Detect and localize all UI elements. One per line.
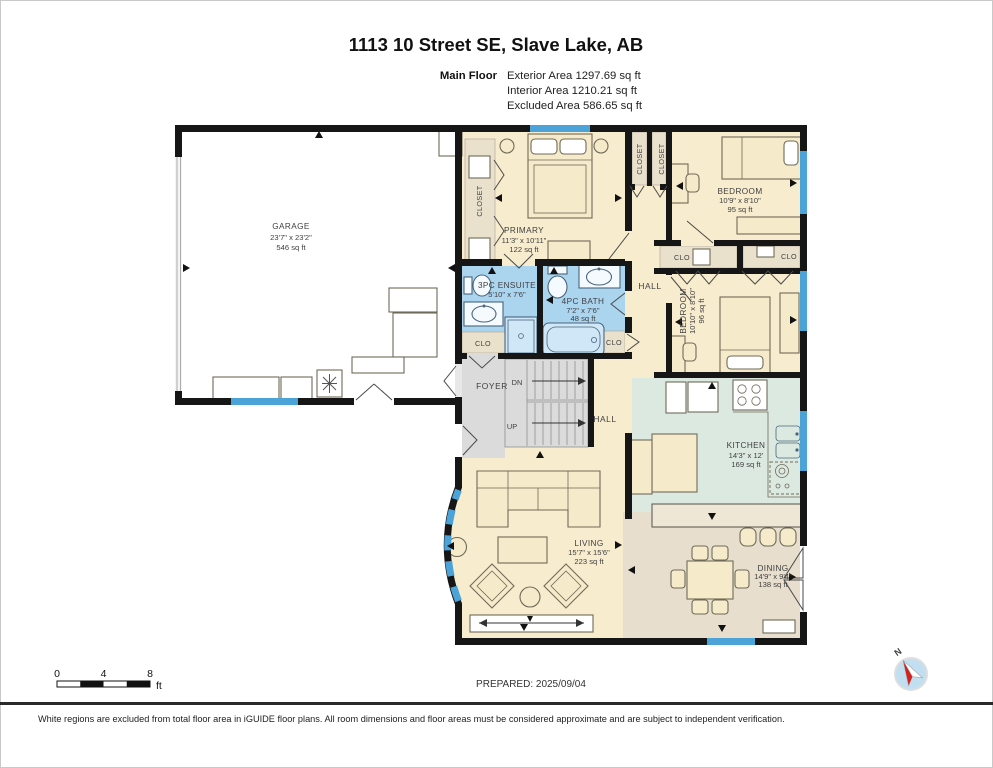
chair-icon xyxy=(692,546,708,560)
bathtub-icon xyxy=(543,323,604,356)
clo-label: CLO xyxy=(781,252,797,261)
living-dims-label: 15'7" x 15'6" xyxy=(568,548,610,557)
pillow-icon xyxy=(784,141,798,165)
ensuite-dims-label: 5'10" x 7'6" xyxy=(488,290,526,299)
chair-icon xyxy=(735,570,749,588)
scale-tick-4: 4 xyxy=(101,668,107,680)
bedroom1-dims-label: 10'9" x 8'10" xyxy=(719,196,761,205)
garage-floor xyxy=(178,128,459,402)
dresser-icon xyxy=(548,241,590,261)
closet-shelf-icon xyxy=(469,238,490,260)
hall-label: HALL xyxy=(593,414,616,424)
kitchen-dims-label: 14'3" x 12' xyxy=(729,451,764,460)
closet-label: CLOSET xyxy=(475,185,484,216)
side-table-icon xyxy=(520,587,540,607)
chair-icon xyxy=(686,174,699,192)
footer-divider xyxy=(0,702,993,705)
foyer-label: FOYER xyxy=(476,381,508,391)
stairs xyxy=(505,359,588,447)
coffee-table-icon xyxy=(498,537,547,563)
nightstand-icon xyxy=(500,139,514,153)
bedroom2-area-label: 96 sq ft xyxy=(697,298,706,324)
bath-name-label: 4PC BATH xyxy=(562,297,605,306)
window xyxy=(800,271,807,331)
scale-tick-8: 8 xyxy=(147,668,153,680)
closet-label: CLOSET xyxy=(635,143,644,174)
floor-label: Main Floor xyxy=(440,70,498,82)
exterior-area: Exterior Area 1297.69 sq ft xyxy=(507,70,642,82)
vanity-sink-icon xyxy=(464,302,503,326)
primary-dims-label: 11'3" x 10'11" xyxy=(502,236,547,245)
excluded-area: Excluded Area 586.65 sq ft xyxy=(507,100,643,112)
fridge-icon xyxy=(666,382,686,413)
nightstand-icon xyxy=(594,139,608,153)
stairs-down-label: DN xyxy=(512,378,523,387)
bath-area-label: 48 sq ft xyxy=(571,314,597,323)
dresser-icon xyxy=(737,217,803,234)
foyer-floor xyxy=(462,359,505,458)
footer-disclaimer: White regions are excluded from total fl… xyxy=(38,714,785,724)
garage-name-label: GARAGE xyxy=(272,222,310,231)
primary-name-label: PRIMARY xyxy=(504,226,544,235)
window xyxy=(800,151,807,214)
chair-icon xyxy=(671,570,685,588)
shower-icon xyxy=(505,317,537,356)
pillow-icon xyxy=(560,139,586,154)
window xyxy=(231,398,298,405)
scale-unit-label: ft xyxy=(156,680,162,692)
primary-area-label: 122 sq ft xyxy=(509,245,539,254)
window xyxy=(707,638,755,645)
peninsula-counter xyxy=(652,504,802,527)
chair-icon xyxy=(692,600,708,614)
toilet-icon xyxy=(548,266,567,298)
living-name-label: LIVING xyxy=(574,539,603,548)
kitchen-area-label: 169 sq ft xyxy=(731,460,761,469)
dresser-icon xyxy=(780,293,799,353)
hall-label: HALL xyxy=(638,281,661,291)
sideboard-icon xyxy=(763,620,795,633)
window xyxy=(800,411,807,471)
step-icon xyxy=(352,357,404,373)
pillow-icon xyxy=(727,356,763,369)
pillow-icon xyxy=(531,139,557,154)
window xyxy=(530,125,590,132)
stove-icon xyxy=(733,380,767,410)
stool-icon xyxy=(780,528,796,546)
workbench-icon xyxy=(213,377,279,399)
garage-area-label: 546 sq ft xyxy=(276,243,306,252)
dining-area-label: 138 sq ft xyxy=(758,580,788,589)
chair-icon xyxy=(712,546,728,560)
living-area-label: 223 sq ft xyxy=(574,557,604,566)
kitchen-name-label: KITCHEN xyxy=(727,441,766,450)
chair-icon xyxy=(712,600,728,614)
floorplan-page: 1113 10 Street SE, Slave Lake, AB Main F… xyxy=(0,0,993,768)
garage-dims-label: 23'7" x 23'2" xyxy=(270,233,312,242)
prepared-date: PREPARED: 2025/09/04 xyxy=(476,679,586,690)
clo-label: CLO xyxy=(475,339,491,348)
closet-shelf-icon xyxy=(469,156,490,178)
bedroom2-dims-label: 10'10" x 8'10" xyxy=(688,288,697,334)
page-title: 1113 10 Street SE, Slave Lake, AB xyxy=(349,34,643,55)
garage-door xyxy=(175,157,182,391)
stool-icon xyxy=(740,528,756,546)
bedroom1-area-label: 95 sq ft xyxy=(728,205,754,214)
closet-label: CLOSET xyxy=(657,143,666,174)
media-console-icon xyxy=(470,615,593,632)
stairs-up-label: UP xyxy=(507,422,517,431)
furnace-icon xyxy=(317,370,342,397)
landing-icon xyxy=(389,288,437,312)
stool-icon xyxy=(760,528,776,546)
bench-icon xyxy=(631,440,652,494)
dining-table-icon xyxy=(687,561,733,599)
scale-tick-0: 0 xyxy=(54,668,60,680)
platform-icon xyxy=(393,313,437,357)
ensuite-name-label: 3PC ENSUITE xyxy=(478,281,536,290)
closet-shelf-icon xyxy=(757,246,774,257)
clo-label: CLO xyxy=(606,338,622,347)
interior-area: Interior Area 1210.21 sq ft xyxy=(507,85,638,97)
chair-icon xyxy=(683,343,696,361)
floorplan-canvas: 1113 10 Street SE, Slave Lake, AB Main F… xyxy=(0,0,993,768)
bedroom2-name-label: BEDROOM xyxy=(679,288,688,333)
island-icon xyxy=(652,434,697,492)
closet-shelf-icon xyxy=(693,249,710,265)
vanity-sink-icon xyxy=(579,265,620,288)
workbench2-icon xyxy=(281,377,312,399)
bedroom1-name-label: BEDROOM xyxy=(717,187,762,196)
clo-label: CLO xyxy=(674,253,690,262)
